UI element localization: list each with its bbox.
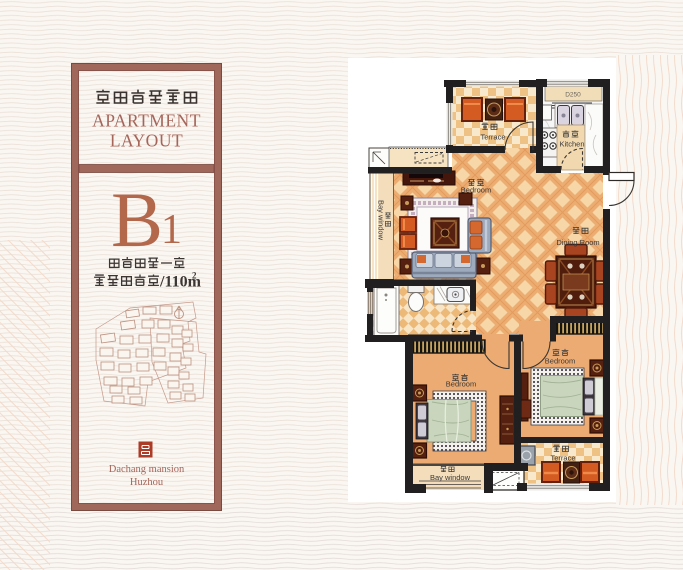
svg-text:Bedroom: Bedroom [545,357,575,366]
svg-text:Bay window: Bay window [377,200,386,241]
svg-text:D250: D250 [565,92,581,99]
svg-text:B: B [111,176,163,263]
svg-text:APARTMENT: APARTMENT [92,111,201,131]
svg-text:2: 2 [192,271,197,281]
svg-text:Dachang mansion: Dachang mansion [109,464,185,475]
svg-text:1: 1 [161,207,182,253]
svg-text:LAYOUT: LAYOUT [110,131,183,151]
svg-text:Terrace: Terrace [480,133,505,142]
svg-text:Bedroom: Bedroom [446,380,476,389]
svg-text:Terrace: Terrace [550,454,575,463]
svg-text:Dining Room: Dining Room [556,238,599,247]
svg-text:Huzhou: Huzhou [130,477,164,488]
svg-text:Kitchen: Kitchen [559,140,584,149]
svg-text:Bay window: Bay window [430,473,471,482]
svg-text:Bedroom: Bedroom [461,186,491,195]
